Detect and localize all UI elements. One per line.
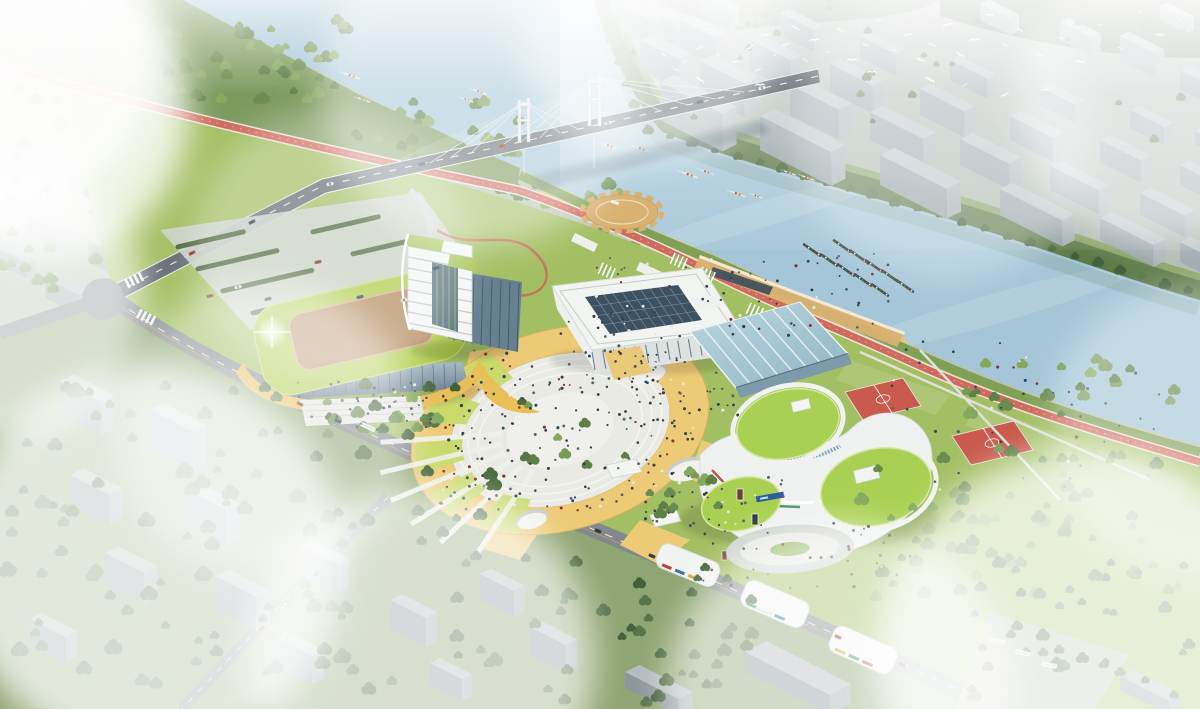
top-haze: [0, 0, 1200, 95]
architectural-rendering: [0, 0, 1200, 709]
rendering-canvas: [0, 0, 1200, 709]
